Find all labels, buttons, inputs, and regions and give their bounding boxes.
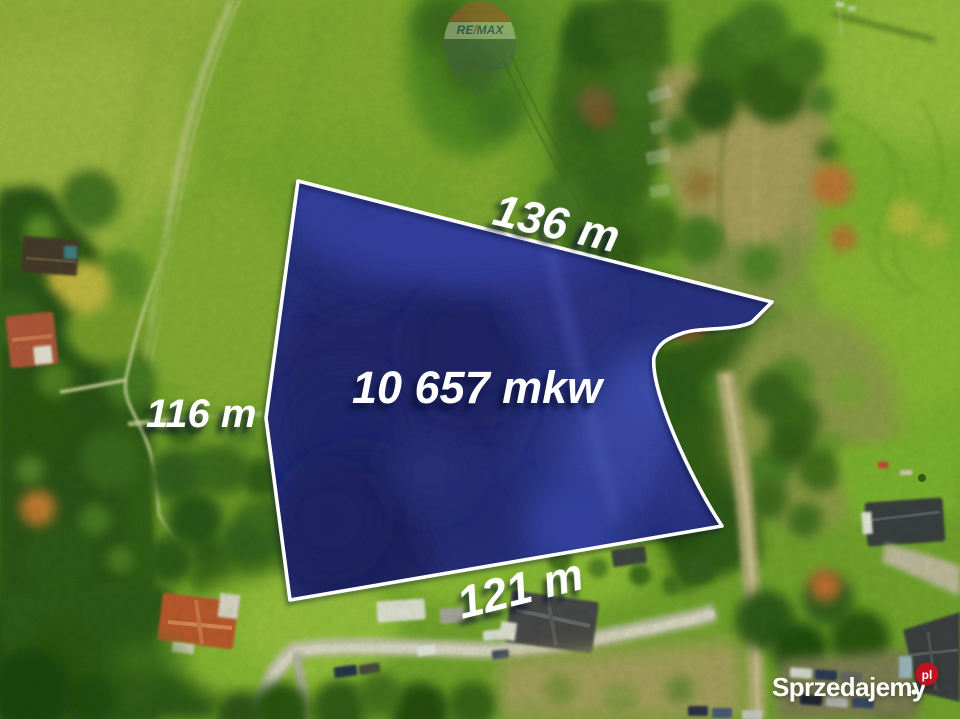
svg-text:116 m: 116 m [146, 392, 256, 436]
svg-text:pl: pl [922, 668, 933, 682]
svg-text:Sprzedajemy: Sprzedajemy [772, 672, 927, 702]
svg-text:10 657 mkw: 10 657 mkw [352, 362, 605, 413]
svg-text:RE/MAX: RE/MAX [457, 23, 505, 37]
